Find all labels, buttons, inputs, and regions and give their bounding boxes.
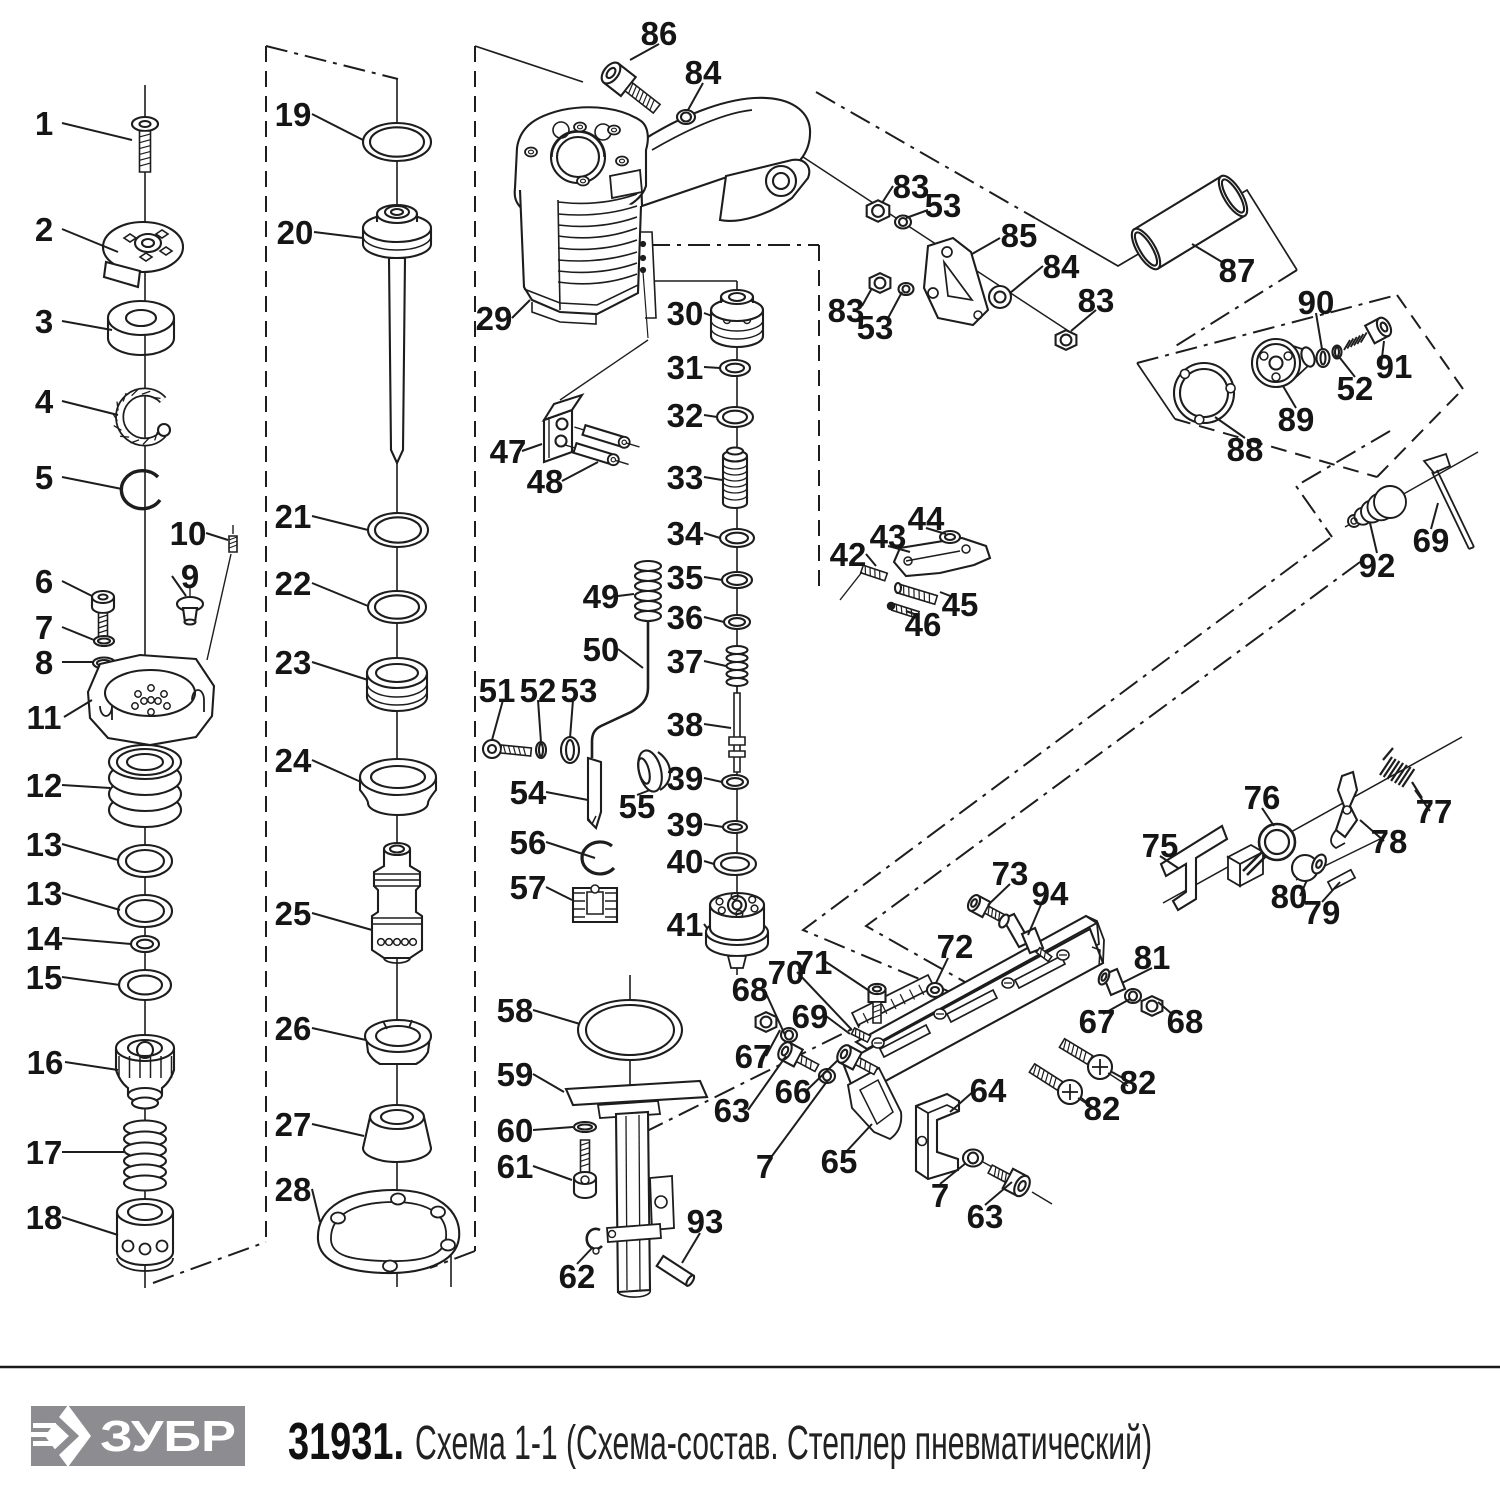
svg-text:31: 31 bbox=[667, 349, 704, 386]
svg-text:56: 56 bbox=[510, 824, 547, 861]
svg-text:35: 35 bbox=[667, 559, 704, 596]
svg-text:31931.: 31931. bbox=[288, 1413, 404, 1471]
svg-text:62: 62 bbox=[559, 1258, 596, 1295]
svg-text:29: 29 bbox=[476, 300, 513, 337]
svg-text:53: 53 bbox=[857, 309, 894, 346]
svg-text:52: 52 bbox=[1337, 370, 1374, 407]
svg-text:39: 39 bbox=[667, 760, 704, 797]
svg-text:26: 26 bbox=[275, 1010, 312, 1047]
svg-text:86: 86 bbox=[641, 15, 678, 52]
svg-text:21: 21 bbox=[275, 498, 312, 535]
svg-text:13: 13 bbox=[26, 875, 63, 912]
svg-text:41: 41 bbox=[667, 906, 704, 943]
svg-text:64: 64 bbox=[970, 1072, 1007, 1109]
svg-text:13: 13 bbox=[26, 826, 63, 863]
svg-text:33: 33 bbox=[667, 459, 704, 496]
svg-text:85: 85 bbox=[1001, 217, 1038, 254]
svg-text:19: 19 bbox=[275, 96, 312, 133]
svg-text:67: 67 bbox=[735, 1038, 772, 1075]
svg-text:11: 11 bbox=[27, 699, 62, 736]
svg-text:81: 81 bbox=[1134, 939, 1171, 976]
svg-text:44: 44 bbox=[908, 500, 945, 537]
svg-text:42: 42 bbox=[830, 536, 867, 573]
svg-text:68: 68 bbox=[1167, 1003, 1204, 1040]
svg-text:3: 3 bbox=[35, 303, 53, 340]
svg-text:66: 66 bbox=[775, 1073, 812, 1110]
svg-text:68: 68 bbox=[732, 971, 769, 1008]
svg-text:5: 5 bbox=[35, 459, 53, 496]
svg-text:28: 28 bbox=[275, 1171, 312, 1208]
svg-text:25: 25 bbox=[275, 895, 312, 932]
svg-text:84: 84 bbox=[685, 54, 722, 91]
svg-text:12: 12 bbox=[26, 767, 63, 804]
svg-text:65: 65 bbox=[821, 1143, 858, 1180]
svg-text:92: 92 bbox=[1359, 547, 1396, 584]
svg-text:93: 93 bbox=[687, 1203, 724, 1240]
svg-text:69: 69 bbox=[1413, 522, 1450, 559]
svg-text:16: 16 bbox=[27, 1044, 64, 1081]
svg-text:8: 8 bbox=[35, 644, 53, 681]
svg-text:39: 39 bbox=[667, 806, 704, 843]
svg-text:20: 20 bbox=[277, 214, 314, 251]
svg-text:80: 80 bbox=[1271, 878, 1308, 915]
svg-text:ЗУБР: ЗУБР bbox=[100, 1412, 236, 1461]
svg-text:57: 57 bbox=[510, 869, 547, 906]
svg-text:36: 36 bbox=[667, 599, 704, 636]
svg-text:6: 6 bbox=[35, 563, 53, 600]
svg-text:37: 37 bbox=[667, 643, 704, 680]
svg-text:72: 72 bbox=[937, 928, 974, 965]
svg-text:50: 50 bbox=[583, 631, 620, 668]
svg-text:52: 52 bbox=[520, 672, 557, 709]
svg-text:27: 27 bbox=[275, 1106, 312, 1143]
svg-text:84: 84 bbox=[1043, 248, 1080, 285]
svg-text:82: 82 bbox=[1084, 1090, 1121, 1127]
svg-text:91: 91 bbox=[1376, 348, 1413, 385]
svg-text:34: 34 bbox=[667, 515, 704, 552]
svg-text:9: 9 bbox=[181, 558, 199, 595]
svg-text:7: 7 bbox=[756, 1148, 774, 1185]
svg-text:23: 23 bbox=[275, 644, 312, 681]
svg-text:55: 55 bbox=[619, 788, 656, 825]
svg-text:54: 54 bbox=[510, 774, 547, 811]
svg-text:60: 60 bbox=[497, 1112, 534, 1149]
svg-text:7: 7 bbox=[35, 609, 53, 646]
svg-text:4: 4 bbox=[35, 383, 54, 420]
svg-text:32: 32 bbox=[667, 397, 704, 434]
svg-text:7: 7 bbox=[931, 1177, 949, 1214]
svg-text:14: 14 bbox=[26, 920, 63, 957]
svg-text:83: 83 bbox=[1078, 282, 1115, 319]
svg-text:67: 67 bbox=[1079, 1003, 1116, 1040]
svg-text:1: 1 bbox=[35, 105, 53, 142]
svg-text:90: 90 bbox=[1298, 284, 1335, 321]
svg-text:73: 73 bbox=[992, 855, 1029, 892]
svg-text:48: 48 bbox=[527, 463, 564, 500]
svg-text:63: 63 bbox=[714, 1092, 751, 1129]
svg-text:46: 46 bbox=[905, 606, 942, 643]
svg-text:22: 22 bbox=[275, 565, 312, 602]
svg-text:69: 69 bbox=[792, 998, 829, 1035]
svg-text:10: 10 bbox=[170, 515, 207, 552]
svg-text:63: 63 bbox=[967, 1198, 1004, 1235]
svg-text:78: 78 bbox=[1371, 823, 1408, 860]
svg-text:18: 18 bbox=[26, 1199, 63, 1236]
svg-text:89: 89 bbox=[1278, 401, 1315, 438]
svg-text:59: 59 bbox=[497, 1056, 534, 1093]
svg-text:77: 77 bbox=[1416, 793, 1453, 830]
svg-text:76: 76 bbox=[1244, 779, 1281, 816]
svg-text:49: 49 bbox=[583, 578, 620, 615]
svg-text:2: 2 bbox=[35, 211, 53, 248]
svg-text:53: 53 bbox=[561, 672, 598, 709]
svg-text:82: 82 bbox=[1120, 1064, 1157, 1101]
svg-text:15: 15 bbox=[26, 959, 63, 996]
svg-text:24: 24 bbox=[275, 742, 312, 779]
svg-text:17: 17 bbox=[26, 1134, 63, 1171]
svg-text:38: 38 bbox=[667, 706, 704, 743]
svg-text:71: 71 bbox=[796, 944, 833, 981]
svg-text:51: 51 bbox=[479, 672, 516, 709]
svg-text:47: 47 bbox=[490, 433, 527, 470]
svg-text:87: 87 bbox=[1219, 252, 1256, 289]
svg-text:79: 79 bbox=[1304, 894, 1341, 931]
svg-text:43: 43 bbox=[870, 518, 907, 555]
svg-text:94: 94 bbox=[1032, 875, 1069, 912]
svg-text:45: 45 bbox=[942, 586, 979, 623]
svg-text:61: 61 bbox=[497, 1148, 534, 1185]
svg-text:53: 53 bbox=[925, 187, 962, 224]
svg-text:40: 40 bbox=[667, 843, 704, 880]
svg-text:30: 30 bbox=[667, 295, 704, 332]
svg-text:75: 75 bbox=[1142, 827, 1179, 864]
svg-text:88: 88 bbox=[1227, 431, 1264, 468]
svg-text:58: 58 bbox=[497, 992, 534, 1029]
svg-text:Схема 1-1 (Схема-состав. Степл: Схема 1-1 (Схема-состав. Степлер пневмат… bbox=[415, 1417, 1152, 1470]
